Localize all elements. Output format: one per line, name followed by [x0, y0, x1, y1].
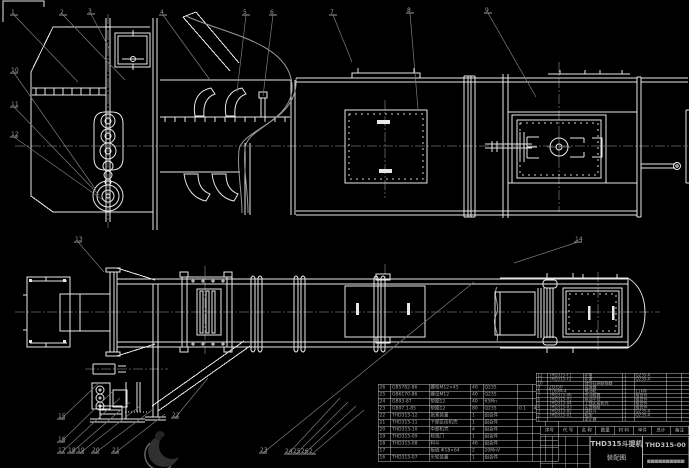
bom-cell: 螺母M12 — [429, 391, 471, 398]
bom-cell: 料斗 — [429, 440, 471, 447]
bom-cell: 序号 — [540, 426, 559, 435]
bom-cell: 组合件 — [483, 412, 518, 419]
buckets — [184, 88, 246, 201]
leader-line — [333, 15, 352, 62]
bom-cell — [518, 391, 533, 398]
bom-cell: 22 — [378, 412, 391, 419]
leader-line — [61, 392, 112, 442]
leader-line — [14, 15, 78, 82]
callout-label: 11 — [11, 101, 19, 108]
callout-label: 18 — [68, 447, 76, 454]
bom-cell: 1 — [471, 454, 484, 461]
lens-flanges — [251, 276, 385, 352]
bom-cell: 代 号 — [559, 426, 578, 435]
leader-line — [410, 13, 418, 109]
callout-label: 16 — [58, 436, 66, 443]
bom-cell: 24 — [378, 398, 391, 405]
bom-cell — [577, 436, 589, 445]
bom-cell: 数量 — [596, 426, 615, 435]
bom-cell: 20MnV — [483, 447, 518, 454]
bom-cell — [565, 436, 577, 445]
callout-label: 14 — [575, 236, 583, 243]
bom-cell: 4 — [471, 426, 484, 433]
drawing-title: THD315斗提机 — [591, 437, 643, 452]
drawing-number-cell: THD315-00 ■■■■■■■■■■ — [642, 436, 689, 468]
bom-cell: 25 — [378, 391, 391, 398]
callout-label: 2 — [60, 9, 64, 16]
leader-line — [14, 73, 96, 190]
bom-cell: 组合件 — [483, 454, 518, 461]
bom-cell: 单件 — [633, 426, 652, 435]
callout-label: 24 — [285, 448, 293, 455]
leader-line — [14, 107, 99, 195]
leader-line — [14, 137, 103, 200]
bom-cell — [634, 417, 667, 421]
callout-label: 1 — [11, 9, 15, 16]
bom-cell — [518, 398, 533, 405]
bom-cell: 1 — [623, 417, 635, 421]
bom-cell — [518, 454, 533, 461]
bom-cell: 垫圈12 — [429, 405, 471, 412]
bom-cell — [540, 445, 552, 454]
bom-cell: 80 — [471, 405, 484, 412]
bom-cell: 21 — [378, 419, 391, 426]
callout-label: 13 — [75, 236, 83, 243]
bom-cell — [553, 436, 565, 445]
bom-cell — [518, 426, 533, 433]
bom-cell — [553, 445, 565, 454]
bom-cell: 螺栓M12×45 — [429, 384, 471, 391]
bom-cell — [518, 440, 533, 447]
bom-cell — [540, 436, 552, 445]
bom-cell: 46 — [471, 440, 484, 447]
callout-label: 23 — [260, 447, 268, 454]
title-block: THD315斗提机 装配图 THD315-00 ■■■■■■■■■■ — [540, 436, 689, 468]
bom-cell — [667, 417, 682, 421]
bom-table-right: 12THD315-F1护罩1Q235-A11THD315-F2护罩1Q235-A… — [536, 373, 689, 422]
bom-cell — [518, 384, 533, 391]
bom-cell: 组合件 — [483, 426, 518, 433]
bom-cell — [565, 454, 577, 463]
bom-cell: 19 — [378, 433, 391, 440]
door-handle-top — [377, 120, 390, 124]
bom-cell: 1 — [471, 433, 484, 440]
bom-cell: 26 — [378, 384, 391, 391]
leader-line — [263, 15, 273, 96]
bom-cell: 逆止器 — [583, 417, 623, 421]
bom-cell: GB5782-86 — [391, 384, 430, 391]
top-drive-box — [115, 30, 150, 70]
leader-line — [296, 402, 348, 454]
bom-table-left: 26GB5782-86螺栓M12×4540Q23525GB6170-86螺母M1… — [378, 384, 559, 462]
callout-label: 26 — [301, 448, 309, 455]
callout-label: 12 — [11, 131, 19, 138]
bom-cell: THD315-09 — [391, 433, 430, 440]
bom-cell — [548, 417, 584, 421]
bom-cell: 17 — [378, 447, 391, 454]
bom-cell: THD315-08 — [391, 440, 430, 447]
callout-label: 10 — [11, 67, 19, 74]
callout-label: 17 — [58, 447, 66, 454]
bom-cell: THD315-12 — [391, 412, 430, 419]
bom-cell: 0.1 — [518, 405, 533, 412]
drawing-title-cell: THD315斗提机 装配图 — [590, 436, 643, 468]
leader-line — [163, 15, 210, 80]
bom-cell: GB6170-86 — [391, 391, 430, 398]
leader-line — [312, 410, 364, 454]
callout-label: 5 — [243, 9, 247, 16]
bom-cell: THD315-11 — [391, 419, 430, 426]
bom-cell — [518, 433, 533, 440]
bom-cell — [391, 447, 430, 454]
callout-label: 8 — [407, 7, 411, 14]
bom-cell: 下部区段机壳 — [429, 419, 471, 426]
bom-cell: 16 — [378, 454, 391, 461]
middle-casing — [296, 68, 637, 215]
bom-cell: 40 — [471, 391, 484, 398]
revision-grid — [540, 436, 590, 468]
callout-label: 4 — [160, 9, 164, 16]
bom-cell: 23 — [378, 405, 391, 412]
leader-line — [80, 406, 140, 453]
leader-line — [78, 242, 104, 272]
callout-label: 3 — [88, 8, 92, 15]
bom-cell: 材 料 — [615, 426, 634, 435]
bom-cell — [577, 445, 589, 454]
bom-cell — [518, 447, 533, 454]
bom-cell: Q235 — [483, 405, 518, 412]
watermark-crescent-logo — [145, 431, 185, 468]
leader-line — [488, 13, 536, 97]
callout-label: 25 — [293, 448, 301, 455]
bom-cell — [577, 463, 589, 468]
title-block-footer: ■■■■■■■■■■ — [643, 455, 689, 468]
bom-cell: 2 — [471, 447, 484, 454]
bom-cell: 40 — [471, 384, 484, 391]
casing-curves — [186, 16, 296, 213]
door-handle-bottom — [379, 169, 392, 173]
bom-cell: THD315-07 — [391, 454, 430, 461]
bom-cell — [553, 454, 565, 463]
cad-drawing-canvas: 1234567891011121314151617181920212223242… — [0, 0, 689, 468]
drawing-subtitle: 装配图 — [591, 452, 643, 465]
bom-cell: 张紧装置 — [429, 412, 471, 419]
bom-cell: 1 — [471, 412, 484, 419]
drive-unit — [90, 364, 152, 422]
upper-view-side-elevation — [3, 1, 689, 230]
bom-cell — [577, 454, 589, 463]
bom-cell — [518, 419, 533, 426]
bom-cell: 40 — [471, 398, 484, 405]
bom-cell: 组合件 — [483, 440, 518, 447]
bom-cell: 名 称 — [577, 426, 596, 435]
bom-cell: 1 — [471, 419, 484, 426]
tail-boot-plan — [494, 273, 645, 353]
bom-cell: Q235 — [483, 391, 518, 398]
bom-cell: 1 — [536, 417, 548, 421]
leader-line — [63, 15, 125, 80]
bom-cell: 20 — [378, 426, 391, 433]
bom-cell: 头轮装置 — [429, 454, 471, 461]
callout-label: 15 — [58, 413, 66, 420]
callout-label: 6 — [270, 9, 274, 16]
bom-header-row: 序号代 号名 称数量材 料单件总计备注 — [540, 426, 689, 435]
callout-label: 20 — [92, 447, 100, 454]
bom-cell — [518, 412, 533, 419]
leader-line — [175, 378, 208, 418]
callout-label: 7 — [330, 9, 334, 16]
callout-label: 2 — [309, 448, 313, 455]
callout-label: 19 — [77, 447, 85, 454]
bom-cell — [681, 417, 689, 421]
bom-cell: 组合件 — [483, 433, 518, 440]
bom-cell: 垫圈12 — [429, 398, 471, 405]
callout-label: 22 — [172, 412, 180, 419]
bom-cell: 65Mn — [483, 398, 518, 405]
tail-takeup-section — [485, 70, 689, 217]
bom-cell: 板链 Φ18×64 — [429, 447, 471, 454]
drawing-number: THD315-00 — [643, 437, 689, 456]
bom-cell: Q235 — [483, 384, 518, 391]
bom-cell: 中部机壳 — [429, 426, 471, 433]
bom-cell: GB97.1-85 — [391, 405, 430, 412]
bom-cell: GB93-87 — [391, 398, 430, 405]
bom-cell: 组合件 — [483, 419, 518, 426]
leader-line — [61, 382, 100, 419]
bom-cell: 18 — [378, 440, 391, 447]
bom-cell — [565, 463, 577, 468]
callout-label: 9 — [485, 7, 489, 14]
bom-cell — [553, 463, 565, 468]
bom-cell: 总计 — [652, 426, 671, 435]
bom-cell: 检视门 — [429, 433, 471, 440]
leader-line — [514, 242, 578, 263]
bom-cell: 备注 — [670, 426, 689, 435]
bom-cell — [565, 445, 577, 454]
bom-cell — [540, 463, 552, 468]
callout-label: 21 — [112, 447, 120, 454]
bom-cell — [540, 454, 552, 463]
bom-cell: THD315-10 — [391, 426, 430, 433]
